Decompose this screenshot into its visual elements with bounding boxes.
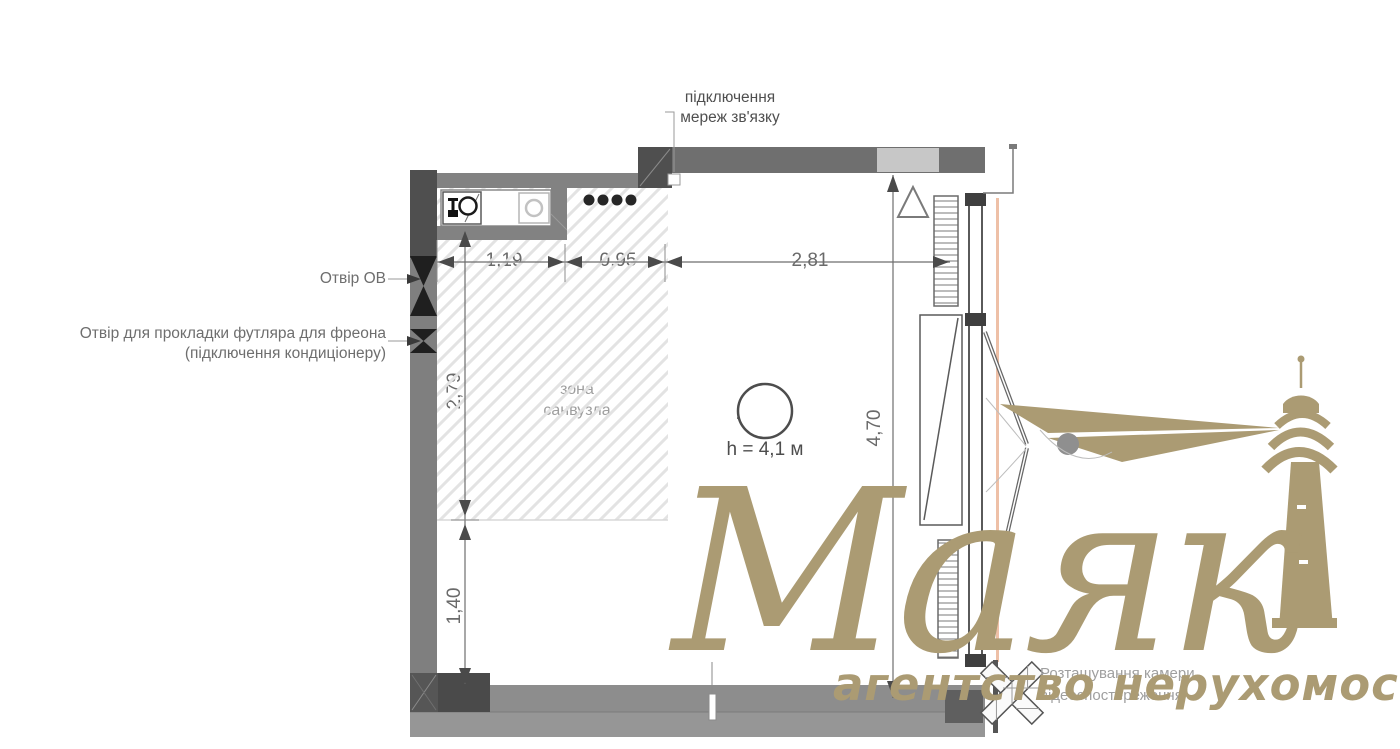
cctv-camera-note: Розташування камери відеоспостереження bbox=[1040, 663, 1195, 707]
camera-note-line2: відеоспостереження bbox=[1040, 685, 1195, 707]
valve-fixture-icon bbox=[443, 192, 481, 224]
vent-shaft bbox=[877, 148, 939, 172]
floor-plan-page: підключення мереж зв'язку Отвір ОВ Отвір… bbox=[0, 0, 1400, 749]
comms-connection-point bbox=[668, 174, 680, 185]
bottom-wall bbox=[410, 662, 985, 737]
unit-number-circle bbox=[738, 384, 792, 438]
camera-note-line1: Розташування камери bbox=[1040, 663, 1195, 685]
top-left-wall bbox=[437, 173, 638, 188]
sink-icon bbox=[519, 193, 549, 223]
entrance-triangle-icon bbox=[898, 187, 928, 217]
window-wall bbox=[965, 144, 1017, 733]
sanitary-block bbox=[437, 188, 567, 240]
balcony-door bbox=[920, 315, 1027, 630]
radiator-bottom bbox=[938, 540, 958, 658]
radiator-top bbox=[934, 196, 958, 306]
facade-accent-line bbox=[996, 198, 999, 662]
floor-plan-drawing bbox=[0, 0, 1400, 749]
cctv-camera-marker bbox=[981, 662, 1043, 724]
